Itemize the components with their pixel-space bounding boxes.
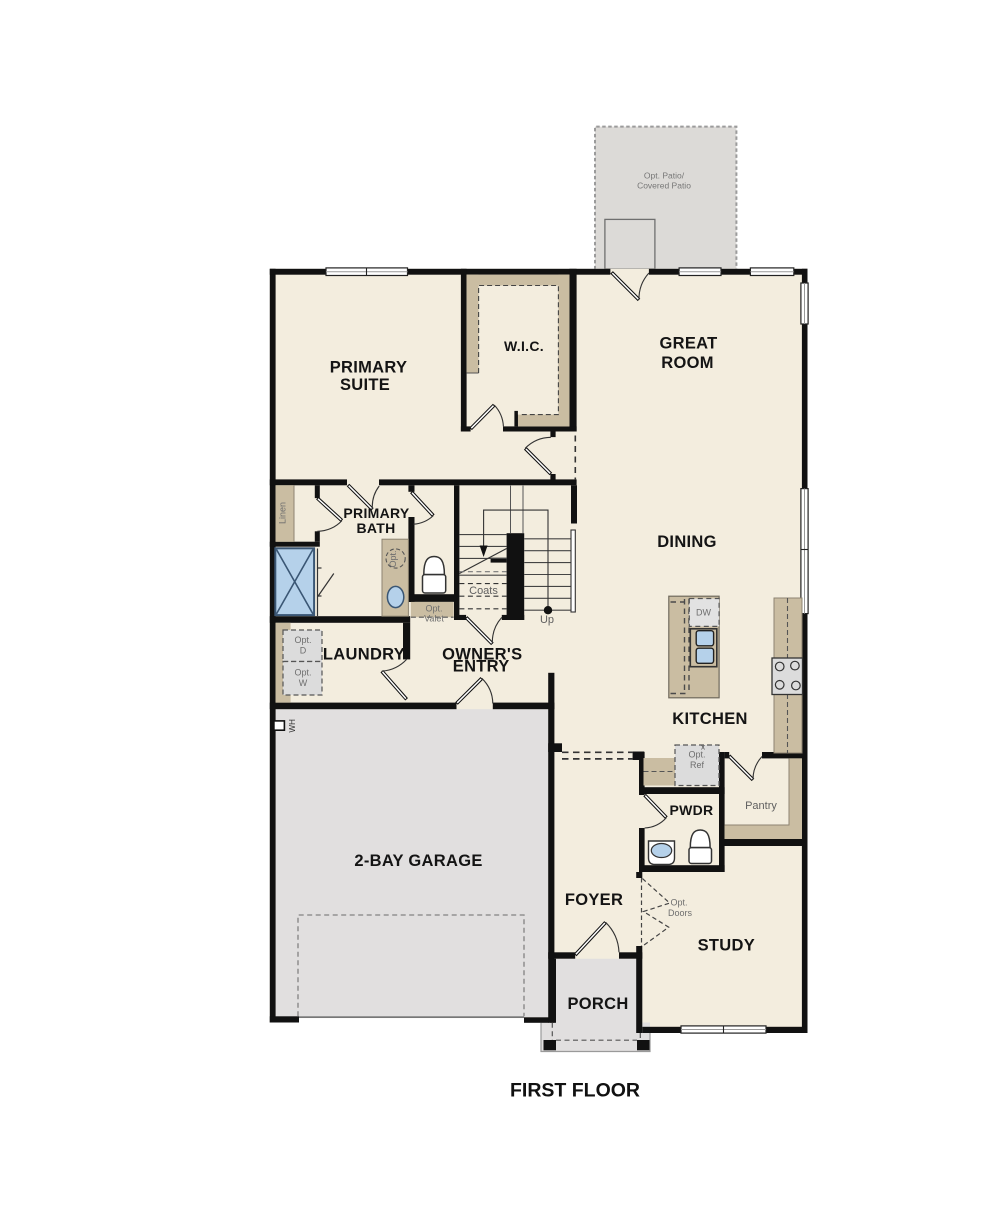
- svg-text:GREAT: GREAT: [659, 335, 717, 353]
- svg-text:W.I.C.: W.I.C.: [504, 338, 544, 354]
- svg-text:Ref: Ref: [690, 760, 705, 770]
- svg-text:Opt.: Opt.: [294, 668, 311, 678]
- svg-text:ROOM: ROOM: [661, 354, 714, 372]
- svg-text:Coats: Coats: [469, 585, 498, 597]
- svg-text:Opt.: Opt.: [688, 750, 705, 760]
- svg-text:Up: Up: [540, 614, 554, 626]
- svg-text:Doors: Doors: [668, 908, 693, 918]
- svg-text:Opt.: Opt.: [294, 635, 311, 645]
- svg-text:WH: WH: [288, 719, 297, 733]
- svg-text:FOYER: FOYER: [565, 891, 623, 909]
- svg-text:Opt. Patio/: Opt. Patio/: [644, 171, 685, 181]
- svg-text:STUDY: STUDY: [698, 937, 755, 955]
- svg-text:D: D: [300, 646, 307, 656]
- svg-text:Linen: Linen: [278, 502, 288, 524]
- svg-text:PWDR: PWDR: [670, 802, 714, 818]
- svg-text:BATH: BATH: [356, 520, 395, 536]
- svg-text:PRIMARY: PRIMARY: [343, 505, 410, 521]
- svg-text:DW: DW: [696, 608, 711, 618]
- svg-text:Valet: Valet: [424, 614, 444, 624]
- svg-text:DINING: DINING: [657, 533, 717, 551]
- svg-text:ENTRY: ENTRY: [453, 658, 510, 676]
- svg-text:FIRST FLOOR: FIRST FLOOR: [510, 1080, 640, 1102]
- svg-text:Opt.: Opt.: [670, 898, 687, 908]
- svg-text:LAUNDRY: LAUNDRY: [323, 645, 405, 663]
- svg-text:Covered Patio: Covered Patio: [637, 181, 691, 191]
- svg-text:KITCHEN: KITCHEN: [672, 710, 747, 728]
- svg-text:Pantry: Pantry: [745, 800, 777, 812]
- svg-text:W: W: [299, 678, 308, 688]
- svg-text:Opt.: Opt.: [425, 604, 442, 614]
- svg-text:PRIMARY: PRIMARY: [330, 359, 408, 377]
- svg-text:Opt.: Opt.: [388, 550, 398, 567]
- svg-text:2-BAY GARAGE: 2-BAY GARAGE: [354, 852, 482, 870]
- svg-text:PORCH: PORCH: [567, 995, 628, 1013]
- svg-text:SUITE: SUITE: [340, 376, 390, 394]
